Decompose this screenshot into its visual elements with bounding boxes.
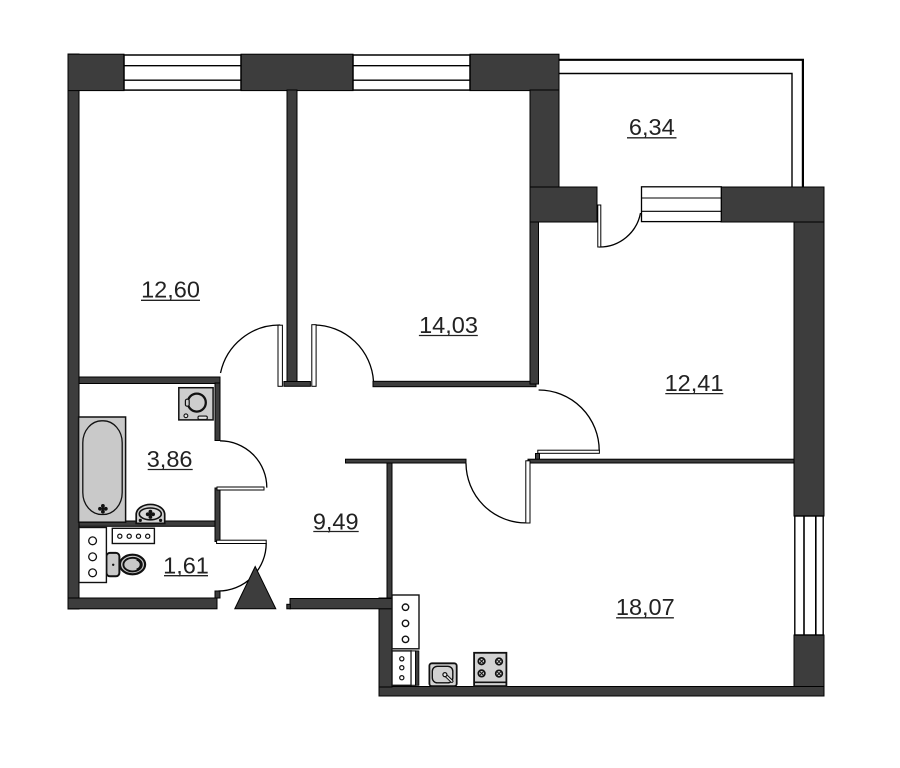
svg-text:18,07: 18,07 (616, 594, 675, 620)
svg-text:1,61: 1,61 (163, 553, 209, 579)
svg-text:6,34: 6,34 (629, 114, 675, 140)
svg-text:3,86: 3,86 (147, 446, 193, 472)
svg-text:12,60: 12,60 (141, 277, 200, 303)
svg-text:9,49: 9,49 (313, 508, 359, 534)
svg-text:12,41: 12,41 (665, 370, 724, 396)
svg-text:14,03: 14,03 (419, 312, 478, 338)
